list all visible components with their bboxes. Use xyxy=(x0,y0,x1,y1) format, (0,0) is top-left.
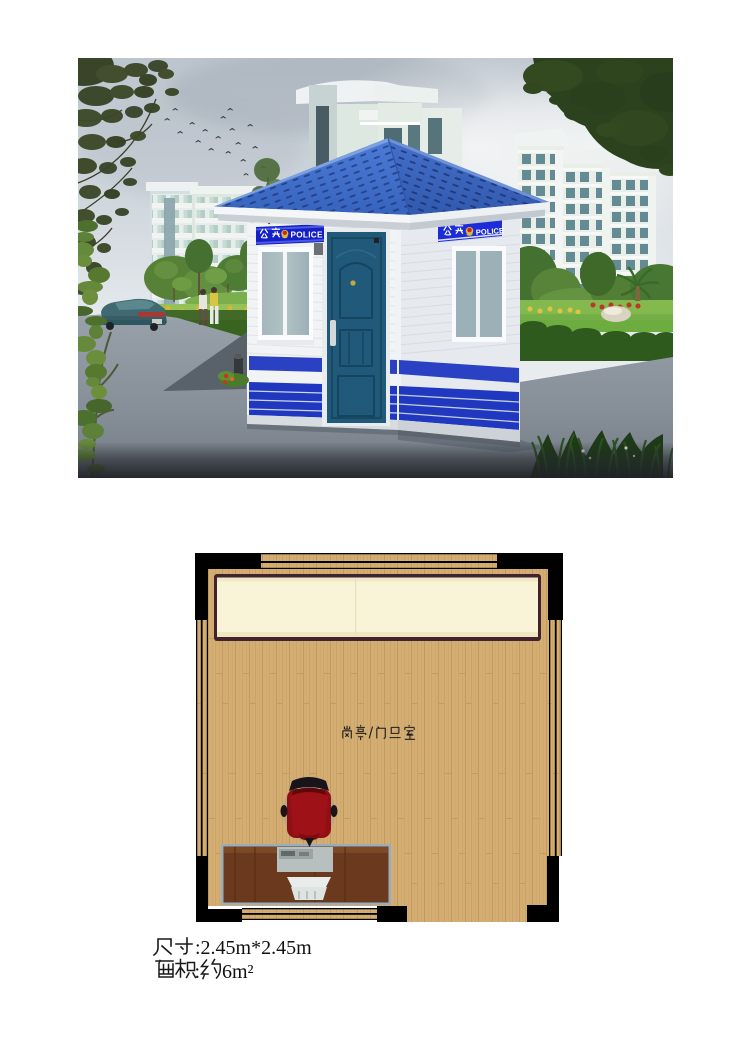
svg-text:6m²: 6m² xyxy=(222,961,254,983)
svg-text::2.45m*2.45m: :2.45m*2.45m xyxy=(195,937,312,959)
svg-text:POLICE: POLICE xyxy=(291,231,324,240)
svg-text::: : xyxy=(195,961,201,983)
